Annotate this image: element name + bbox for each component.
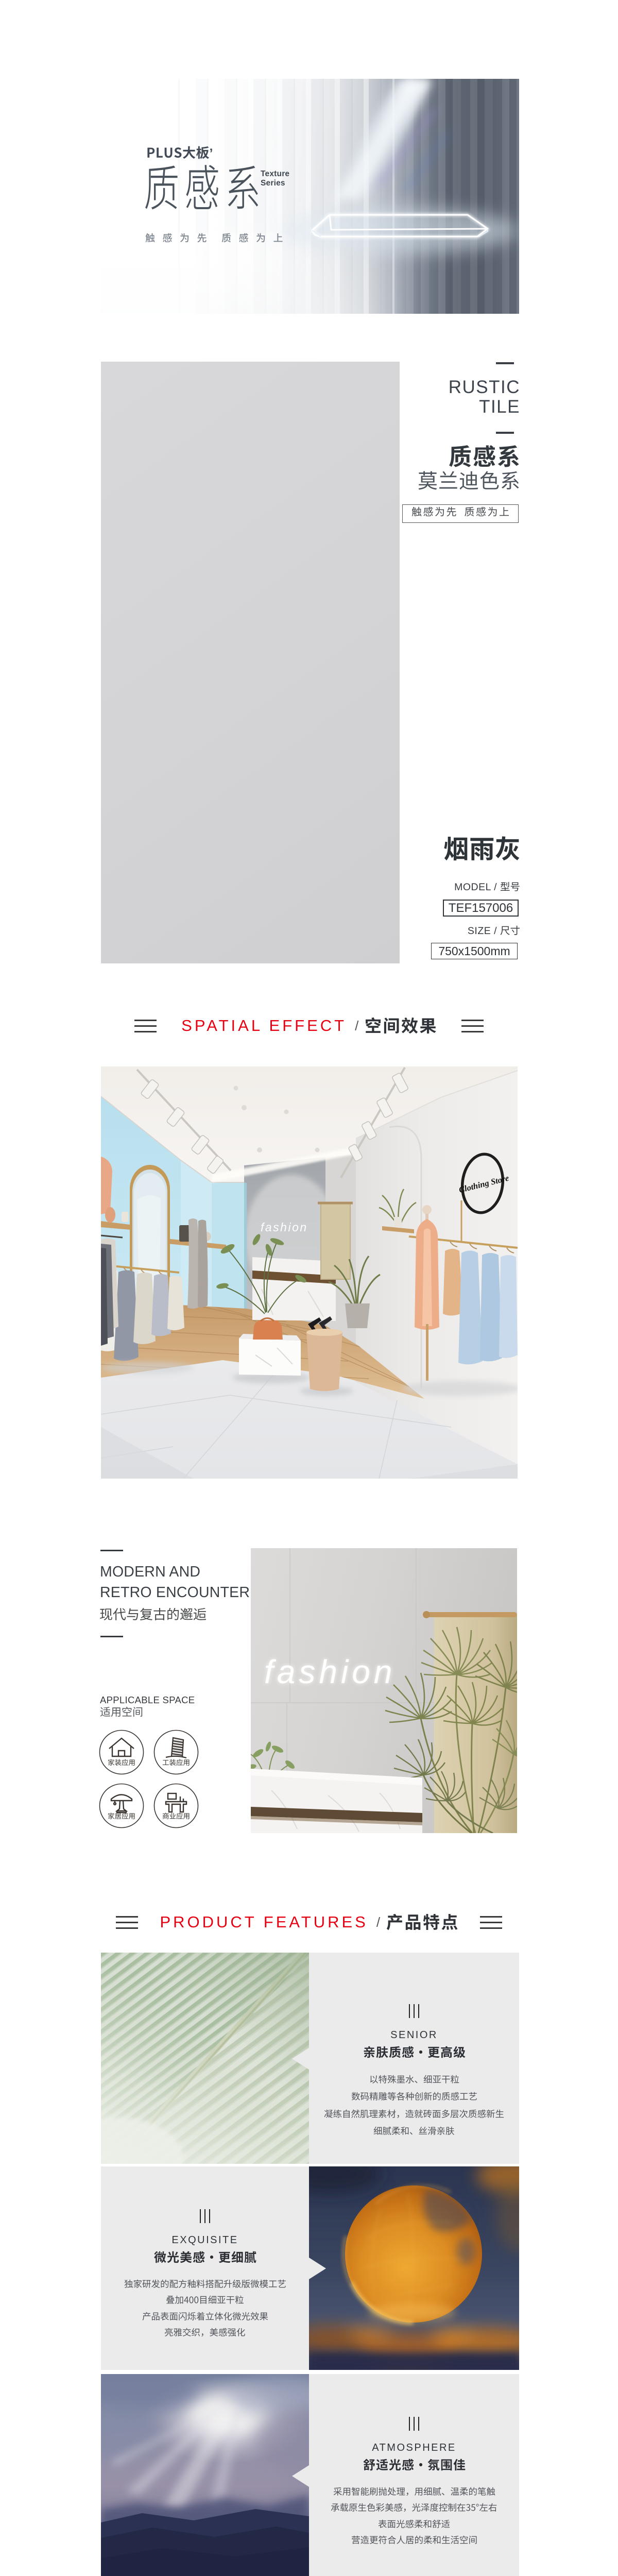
svg-text:fashion: fashion bbox=[264, 1653, 396, 1690]
svg-text:fashion: fashion bbox=[261, 1221, 308, 1234]
